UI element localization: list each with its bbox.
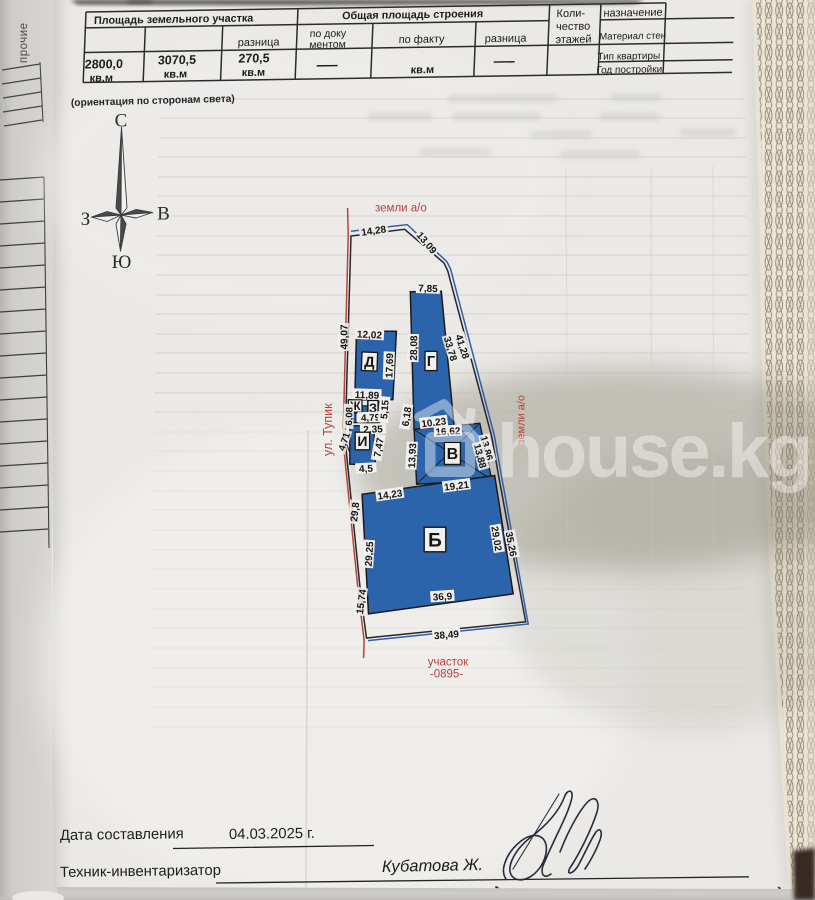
svg-text:кв.м: кв.м — [410, 64, 434, 76]
svg-text:Общая площадь строения: Общая площадь строения — [342, 8, 483, 22]
svg-text:земли а/о: земли а/о — [375, 203, 427, 215]
svg-text:Техник-инвентаризатор: Техник-инвентаризатор — [60, 863, 221, 881]
svg-text:4,79: 4,79 — [361, 413, 381, 425]
svg-text:В: В — [157, 204, 170, 225]
svg-text:270,5: 270,5 — [238, 51, 270, 65]
svg-text:4,5: 4,5 — [359, 464, 374, 476]
svg-text:кв.м: кв.м — [89, 72, 113, 84]
svg-text:2800,0: 2800,0 — [85, 57, 124, 72]
svg-text:ул. Тупик: ул. Тупик — [321, 403, 335, 456]
svg-text:3070,5: 3070,5 — [158, 53, 197, 68]
svg-text:разница: разница — [238, 36, 281, 49]
svg-text:Б: Б — [428, 530, 442, 551]
svg-text:17,69: 17,69 — [384, 352, 396, 378]
svg-text:кв.м: кв.м — [241, 67, 265, 79]
svg-text:36,9: 36,9 — [432, 591, 453, 603]
svg-text:Ю: Ю — [112, 252, 132, 273]
svg-text:этажей: этажей — [555, 34, 591, 47]
svg-text:04.03.2025 г.: 04.03.2025 г. — [229, 826, 315, 843]
svg-text:12,02: 12,02 — [357, 329, 383, 341]
svg-text:6,08: 6,08 — [344, 407, 356, 426]
svg-text:Кубатова Ж.: Кубатова Ж. — [382, 856, 483, 876]
svg-text:5,15: 5,15 — [379, 399, 392, 420]
svg-text:Год постройки: Год постройки — [596, 64, 662, 76]
svg-text:назначение: назначение — [603, 7, 663, 20]
svg-text:38,49: 38,49 — [434, 629, 460, 642]
svg-text:Д: Д — [364, 355, 376, 371]
svg-text:13,93: 13,93 — [407, 442, 419, 468]
svg-text:Дата составления: Дата составления — [60, 826, 184, 844]
svg-text:чество: чество — [556, 21, 591, 34]
svg-text:прочие: прочие — [18, 22, 30, 63]
svg-text:разница: разница — [484, 33, 527, 46]
svg-text:Тип квартиры: Тип квартиры — [597, 51, 660, 63]
svg-text:Площадь земельного участка: Площадь земельного участка — [94, 12, 255, 27]
svg-text:И: И — [357, 433, 367, 449]
svg-text:ментом: ментом — [309, 39, 346, 52]
svg-text:по факту: по факту — [398, 33, 445, 46]
svg-text:49,07: 49,07 — [339, 324, 350, 349]
svg-text:Материал стен: Материал стен — [599, 31, 666, 43]
svg-text:З: З — [81, 209, 91, 230]
svg-text:-0895-: -0895- — [430, 669, 463, 681]
svg-text:Коли-: Коли- — [556, 8, 585, 20]
svg-text:В: В — [447, 446, 459, 463]
svg-text:кв.м: кв.м — [163, 68, 187, 80]
svg-text:29,25: 29,25 — [364, 541, 377, 567]
svg-text:house.kg: house.kg — [497, 409, 811, 494]
svg-text:28,08: 28,08 — [409, 335, 420, 361]
svg-text:Г: Г — [427, 354, 435, 370]
svg-text:участок: участок — [428, 657, 469, 669]
svg-text:29,8: 29,8 — [349, 501, 362, 522]
svg-text:7,85: 7,85 — [418, 283, 438, 295]
